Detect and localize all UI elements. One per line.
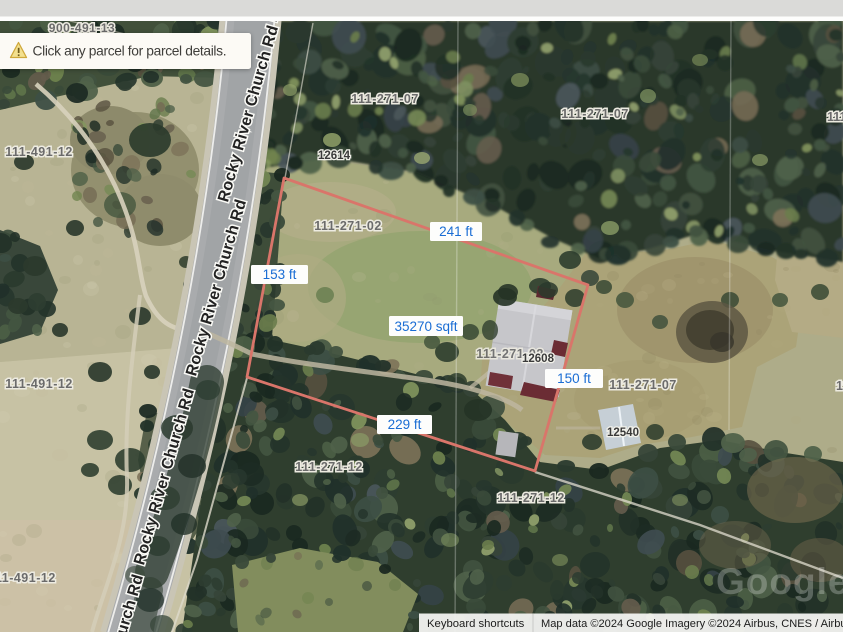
svg-text:111-491-12: 111-491-12	[5, 377, 73, 391]
svg-text:111-271-07: 111-271-07	[609, 378, 677, 392]
svg-text:35270 sqft: 35270 sqft	[394, 319, 457, 334]
svg-text:111-271-07: 111-271-07	[351, 92, 419, 106]
svg-text:111-271-12: 111-271-12	[497, 491, 565, 505]
svg-text:900-491-13: 900-491-13	[49, 21, 115, 35]
svg-text:Click any parcel for parcel de: Click any parcel for parcel details.	[33, 44, 227, 59]
svg-text:Google: Google	[716, 561, 843, 602]
svg-text:150 ft: 150 ft	[557, 371, 591, 386]
svg-text:111-271-12: 111-271-12	[295, 460, 363, 474]
svg-text:153 ft: 153 ft	[263, 267, 297, 282]
svg-text:241 ft: 241 ft	[439, 224, 473, 239]
svg-text:Keyboard shortcuts: Keyboard shortcuts	[427, 618, 525, 630]
svg-text:12614: 12614	[318, 150, 351, 162]
svg-text:Map data ©2024 Google Imagery: Map data ©2024 Google Imagery ©2024 Airb…	[541, 618, 843, 630]
svg-text:229 ft: 229 ft	[388, 417, 422, 432]
svg-text:111-271-02: 111-271-02	[314, 219, 382, 233]
svg-text:12608: 12608	[522, 353, 555, 365]
svg-text:111-271-07: 111-271-07	[561, 107, 629, 121]
svg-text:111-491-12: 111-491-12	[5, 145, 73, 159]
svg-text:12540: 12540	[607, 427, 639, 439]
svg-text:111-491-12: 111-491-12	[0, 571, 56, 585]
svg-text:111-271-04: 111-271-04	[827, 110, 843, 124]
svg-text:111-271: 111-271	[836, 379, 843, 393]
